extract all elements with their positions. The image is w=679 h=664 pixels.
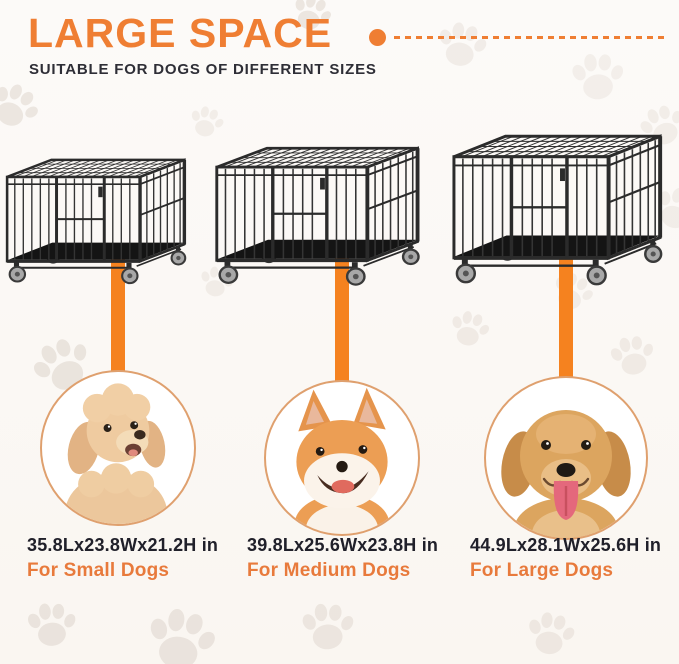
paw-print-icon <box>442 302 495 355</box>
shiba-inu-photo <box>264 380 420 536</box>
golden-retriever-photo <box>484 376 648 540</box>
dashed-divider <box>394 36 668 39</box>
paw-print-icon <box>0 69 51 144</box>
paw-print-icon <box>519 603 581 664</box>
product-infographic: LARGE SPACE SUITABLE FOR DOGS OF DIFFERE… <box>0 0 679 664</box>
label-large-dogs: For Large Dogs <box>470 560 661 582</box>
paw-print-icon <box>294 594 360 660</box>
crate-large-image <box>448 110 676 290</box>
title-bullet-dot <box>369 29 386 46</box>
paw-print-icon <box>19 593 83 657</box>
caption-small: 35.8Lx23.8Wx21.2H in For Small Dogs <box>27 535 218 582</box>
poodle-photo <box>40 370 196 526</box>
label-small-dogs: For Small Dogs <box>27 560 218 582</box>
crate-medium-image <box>211 124 433 290</box>
crate-small-image <box>2 138 198 288</box>
label-medium-dogs: For Medium Dogs <box>247 560 438 582</box>
page-subtitle: SUITABLE FOR DOGS OF DIFFERENT SIZES <box>29 61 377 78</box>
dimensions-medium: 39.8Lx25.6Wx23.8H in <box>247 535 438 556</box>
page-title: LARGE SPACE <box>28 10 332 57</box>
dimensions-small: 35.8Lx23.8Wx21.2H in <box>27 535 218 556</box>
paw-print-icon <box>600 324 663 387</box>
caption-medium: 39.8Lx25.6Wx23.8H in For Medium Dogs <box>247 535 438 582</box>
caption-large: 44.9Lx28.1Wx25.6H in For Large Dogs <box>470 535 661 582</box>
paw-print-icon <box>135 595 225 664</box>
paw-print-icon <box>563 43 631 111</box>
dimensions-large: 44.9Lx28.1Wx25.6H in <box>470 535 661 556</box>
paw-print-icon <box>428 12 494 78</box>
